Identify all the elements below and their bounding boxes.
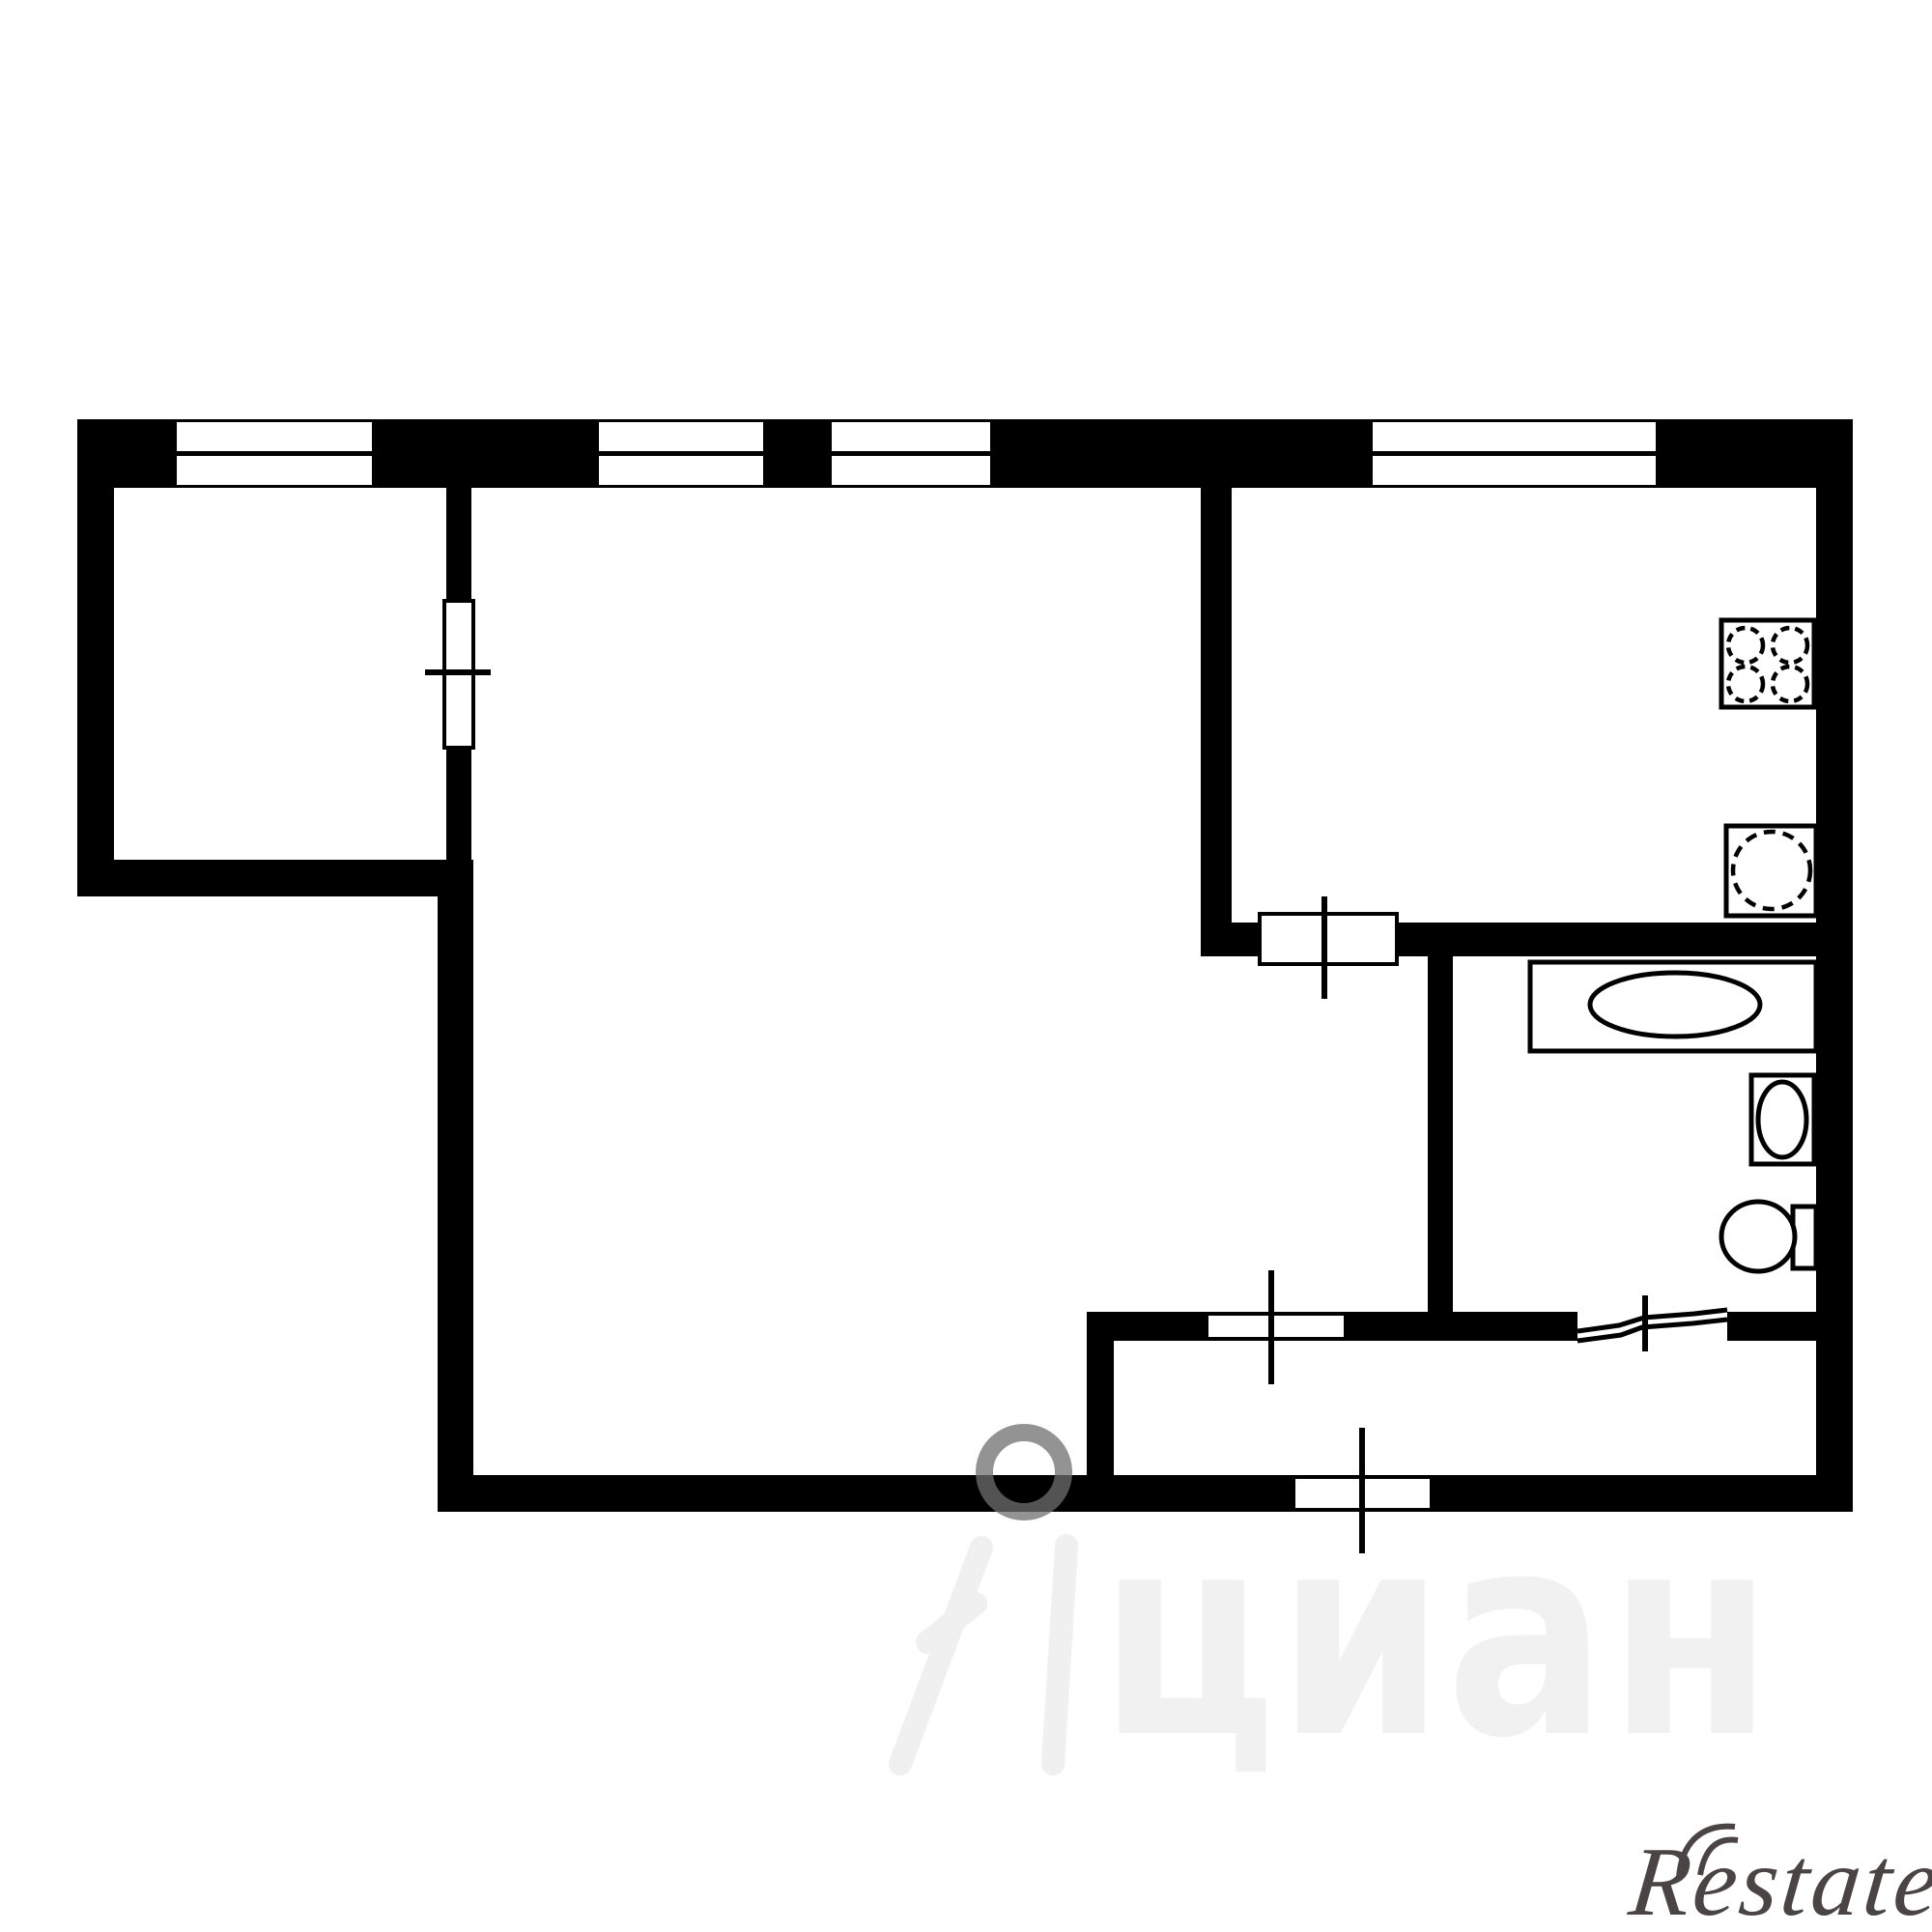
- wall-divider-upper: [446, 488, 471, 602]
- hall-door-opening: [1205, 1312, 1348, 1341]
- bathroom-door-tick: [1642, 1295, 1648, 1351]
- kitchen-door-tick: [1321, 896, 1327, 999]
- wall-balcony-bottom: [77, 860, 472, 896]
- bathtub-icon: [1530, 962, 1816, 1051]
- cian-logo-pin: [900, 1546, 1066, 1764]
- wall-kitchen-left: [1201, 488, 1232, 928]
- window-4-mullion: [1373, 451, 1656, 456]
- floor-plan: циан Restate: [0, 0, 1932, 1932]
- wall-right-exterior: [1816, 419, 1853, 1512]
- wall-hall-top-seg2: [1348, 1312, 1577, 1341]
- window-2-mullion: [599, 451, 763, 456]
- wall-hall-top-seg3: [1727, 1312, 1816, 1341]
- wall-divider-lower: [446, 747, 471, 860]
- wall-livingroom-left: [438, 860, 473, 1512]
- kitchen-sink-icon: [1726, 826, 1816, 916]
- wall-bathroom-left: [1428, 956, 1453, 1341]
- restate-watermark-text: Restate: [1626, 1833, 1932, 1932]
- divider-window-tick: [425, 669, 491, 675]
- kitchen-door-opening: [1258, 912, 1399, 966]
- window-3-mullion: [832, 451, 990, 456]
- washbasin-icon: [1751, 1075, 1814, 1164]
- bathroom-door-leaf: [1577, 1310, 1727, 1341]
- toilet-icon: [1721, 1202, 1816, 1271]
- window-1-mullion: [177, 451, 372, 456]
- cian-watermark-text: циан: [1099, 1497, 1775, 1777]
- hall-door-tick: [1268, 1270, 1274, 1384]
- stove-icon: [1721, 620, 1814, 707]
- wall-left-exterior: [77, 419, 114, 896]
